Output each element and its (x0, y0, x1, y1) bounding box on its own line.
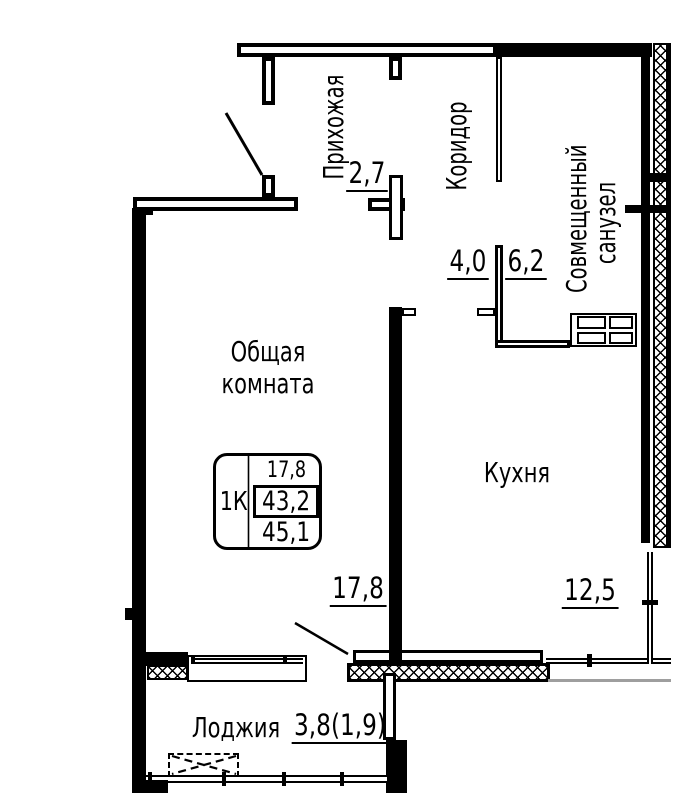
wall-left-notch (125, 608, 132, 620)
room-label-corridor: Коридор (442, 90, 472, 202)
hatched-wall-loggia-left (147, 665, 188, 680)
wall-bath-south (495, 340, 570, 348)
room-label-kitchen: Кухня (442, 458, 592, 488)
balcony-unit-sill (353, 650, 543, 663)
fixture-cell (609, 316, 633, 329)
wall-right-inner (641, 55, 650, 543)
wall-right-joint-lower (625, 205, 668, 213)
wall-loggia-left (146, 652, 188, 666)
room-label-living-line1: Общая (193, 336, 343, 368)
floor-plan: Прихожая Коридор Совмещенный санузел Общ… (0, 0, 673, 800)
room-label-bathroom-line2: санузел (591, 153, 620, 293)
wall-living-kitchen (389, 307, 402, 663)
wall-hall-tick (146, 208, 153, 215)
entrance-wall-stub (262, 57, 275, 105)
area-corridor: 4,0 (447, 247, 489, 280)
hall-corridor-stub (389, 57, 402, 80)
wall-hall-south (133, 197, 298, 211)
stamp-total-area: 43,2 (253, 485, 319, 518)
room-label-bathroom: Совмещенный санузел (562, 153, 620, 293)
stamp-total-area-with-balcony: 45,1 (253, 518, 319, 547)
living-window-tick (283, 655, 287, 664)
partition-corridor-bath-upper (496, 57, 502, 182)
kitchen-door-tick-right (477, 308, 495, 316)
living-window-tick (191, 655, 195, 664)
area-living: 17,8 (330, 574, 386, 607)
loggia-glazing-tick (340, 772, 344, 786)
area-bathroom: 6,2 (505, 247, 547, 280)
door-swing-line-entrance (226, 113, 262, 175)
hatched-balcony-unit (347, 663, 550, 682)
apartment-stamp: 1К 17,8 43,2 45,1 (213, 453, 322, 550)
area-hallway: 2,7 (346, 159, 388, 192)
room-label-bathroom-line1: Совмещенный (562, 153, 591, 293)
stamp-unit-type: 1К (220, 456, 250, 547)
room-label-living: Общая комната (193, 336, 343, 400)
area-kitchen: 12,5 (562, 576, 618, 609)
kitchen-window-east (647, 552, 653, 664)
wall-loggia-corner (132, 780, 168, 793)
kitchen-window-south-tick (587, 654, 592, 667)
room-label-living-line2: комната (193, 368, 343, 400)
fixture-cell (577, 316, 606, 329)
loggia-glazing-tick (282, 772, 286, 786)
wall-top-left (237, 43, 497, 57)
fixture-cell (577, 332, 606, 344)
kitchen-door-tick-left (402, 308, 416, 316)
wall-left (132, 208, 146, 793)
context-line (548, 679, 671, 682)
hatched-wall-right (653, 43, 668, 548)
wall-top-right (497, 43, 652, 57)
door-swing-line-loggia (295, 623, 348, 654)
wall-loggia-right (386, 740, 407, 793)
fixture-cell (609, 332, 633, 344)
kitchen-window-east-tick (642, 600, 658, 605)
entrance-door-jamb (262, 175, 275, 197)
area-loggia: 3,8(1,9) (292, 711, 389, 744)
wall-right-outer-line (668, 43, 671, 548)
wall-right-joint-upper (641, 173, 668, 182)
stamp-living-area: 17,8 (253, 456, 319, 485)
equipment-dashed-box (168, 753, 239, 777)
